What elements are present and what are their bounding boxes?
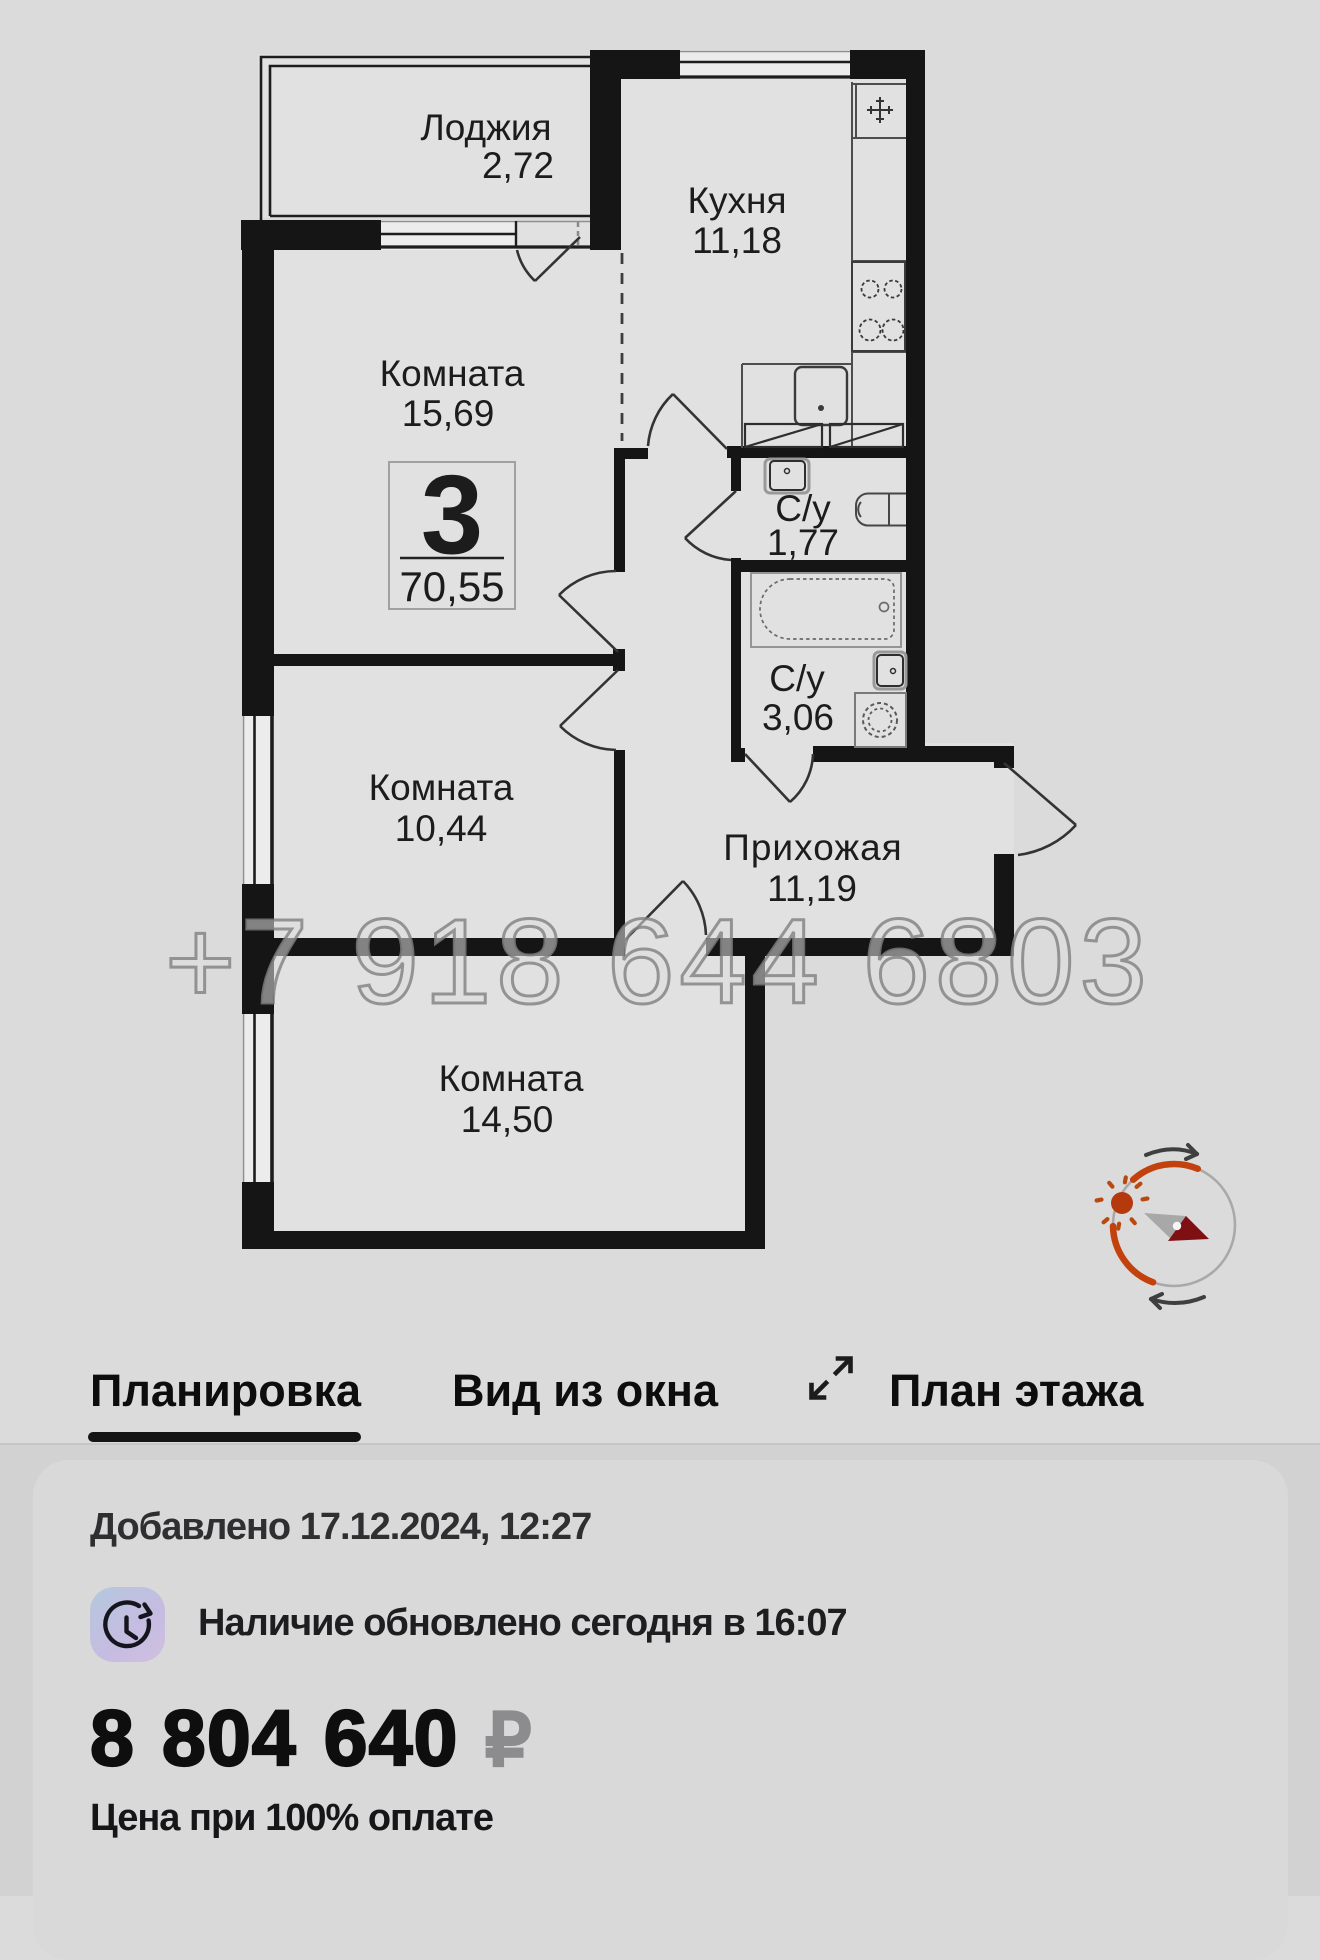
svg-text:С/у: С/у xyxy=(769,658,825,699)
svg-text:Комната: Комната xyxy=(380,353,525,394)
svg-text:3,06: 3,06 xyxy=(762,697,834,738)
svg-text:Комната: Комната xyxy=(369,767,514,808)
svg-text:Комната: Комната xyxy=(439,1058,584,1099)
svg-text:11,18: 11,18 xyxy=(692,220,782,261)
svg-text:2,72: 2,72 xyxy=(482,145,554,186)
svg-text:14,50: 14,50 xyxy=(461,1099,554,1140)
svg-text:10,44: 10,44 xyxy=(395,808,488,849)
svg-text:Лоджия: Лоджия xyxy=(420,107,551,148)
svg-text:Кухня: Кухня xyxy=(687,180,786,221)
svg-text:1,77: 1,77 xyxy=(767,522,839,563)
svg-text:15,69: 15,69 xyxy=(402,393,495,434)
svg-text:Прихожая: Прихожая xyxy=(723,827,902,868)
svg-text:70,55: 70,55 xyxy=(399,563,504,610)
